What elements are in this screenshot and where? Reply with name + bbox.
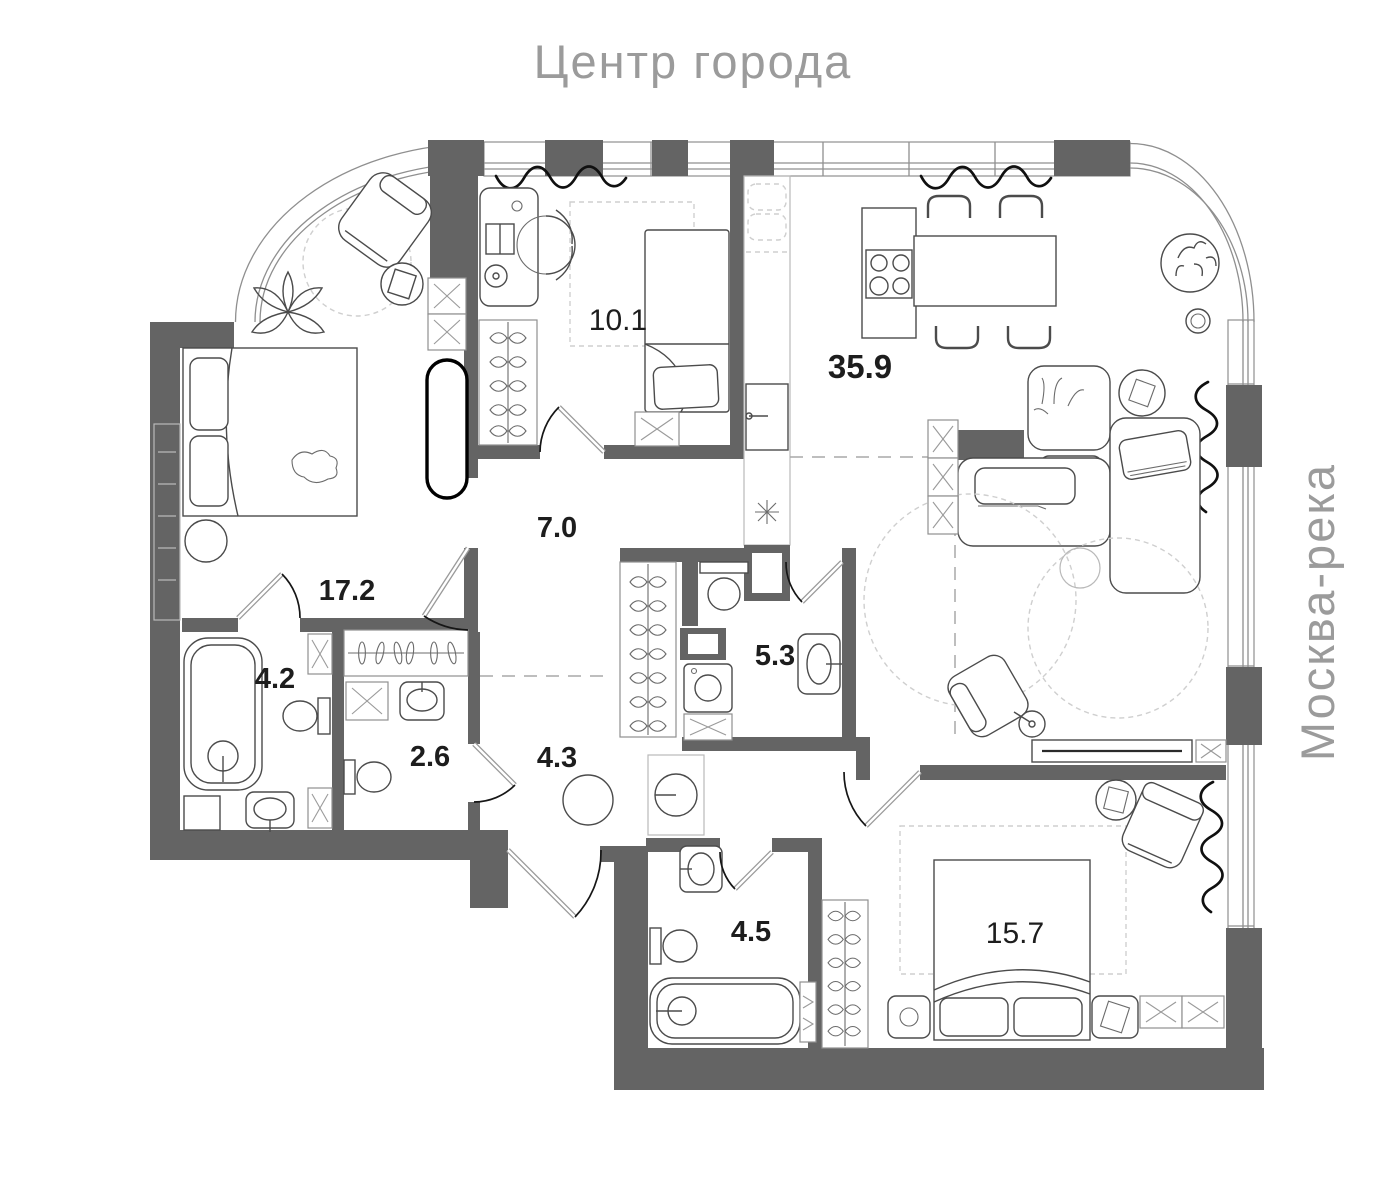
hallway xyxy=(480,562,704,835)
sink xyxy=(246,792,294,832)
floor-plan: Центр города Москва-река 10.1 35.9 7.0 1… xyxy=(0,0,1385,1200)
bathtub xyxy=(184,638,262,790)
room-master-bedroom xyxy=(154,348,467,620)
sink xyxy=(680,846,722,892)
room-area-master: 17.2 xyxy=(319,575,375,607)
hood-symbol xyxy=(755,500,779,524)
room-area-bath45: 4.5 xyxy=(731,916,771,948)
floor-plan-page: Центр города Москва-река 10.1 35.9 7.0 1… xyxy=(0,0,1385,1200)
desk xyxy=(480,188,538,306)
curtain xyxy=(1201,782,1223,912)
room-area-wc26: 2.6 xyxy=(410,741,450,773)
sofa-vertical xyxy=(1110,418,1200,593)
door-bath45 xyxy=(720,852,772,889)
door-entry xyxy=(508,850,601,917)
niche-cabinet xyxy=(428,278,466,350)
sink xyxy=(798,634,842,694)
mirror xyxy=(563,775,613,825)
bedside-table xyxy=(185,520,227,562)
door-master xyxy=(424,548,468,630)
storage-column xyxy=(928,420,958,534)
sink xyxy=(400,682,444,720)
console-table xyxy=(427,360,467,498)
coat-closet xyxy=(344,630,468,676)
dining-table xyxy=(914,196,1056,348)
coffee-table xyxy=(1060,548,1100,588)
shelf xyxy=(184,796,220,830)
door-bedroom157 xyxy=(844,772,920,826)
toilet xyxy=(344,760,391,794)
door-wc26 xyxy=(474,744,515,802)
page-title: Центр города xyxy=(534,35,853,88)
bathtub xyxy=(650,978,800,1044)
narrow-shelf xyxy=(800,982,816,1042)
lounge-chair xyxy=(332,166,437,273)
toilet xyxy=(700,562,748,610)
kitchen-cabinets xyxy=(744,176,790,601)
toilet xyxy=(283,698,330,734)
room-area-bedroom157: 15.7 xyxy=(986,917,1044,950)
room-area-child: 10.1 xyxy=(589,304,647,337)
side-table xyxy=(381,263,423,305)
window-arc-top-right xyxy=(1130,144,1254,323)
door-bath42 xyxy=(238,574,300,618)
nightstand-right xyxy=(1092,996,1138,1038)
room-area-hall: 7.0 xyxy=(537,512,577,544)
kitchen-island xyxy=(862,208,916,338)
door-child xyxy=(540,407,604,452)
fridge xyxy=(748,184,786,210)
room-area-living: 35.9 xyxy=(828,348,892,385)
hall-closet xyxy=(620,562,676,737)
sofa-horizontal xyxy=(958,458,1110,546)
room-area-corridor: 4.3 xyxy=(537,742,577,774)
side-table xyxy=(1096,780,1136,820)
nightstand-left xyxy=(888,996,930,1038)
toilet xyxy=(650,928,697,964)
double-bed xyxy=(183,348,357,516)
laundry-counter xyxy=(648,755,704,835)
pouf xyxy=(1119,370,1165,416)
single-bed xyxy=(645,230,729,412)
lamp-chair xyxy=(943,651,1045,742)
wardrobe xyxy=(479,320,537,445)
door-bath53 xyxy=(786,562,842,602)
foot-cabinet xyxy=(635,412,679,446)
river-label: Москва-река xyxy=(1291,463,1344,761)
double-bed xyxy=(934,860,1090,1040)
washing-machine xyxy=(684,664,732,712)
armchair xyxy=(1118,780,1206,872)
room-area-bath53: 5.3 xyxy=(755,640,795,672)
plant-large xyxy=(1161,234,1219,333)
closet xyxy=(822,900,868,1048)
room-bedroom-157 xyxy=(822,780,1224,1048)
tv-console xyxy=(1032,740,1226,762)
room-area-bath42: 4.2 xyxy=(255,663,295,695)
